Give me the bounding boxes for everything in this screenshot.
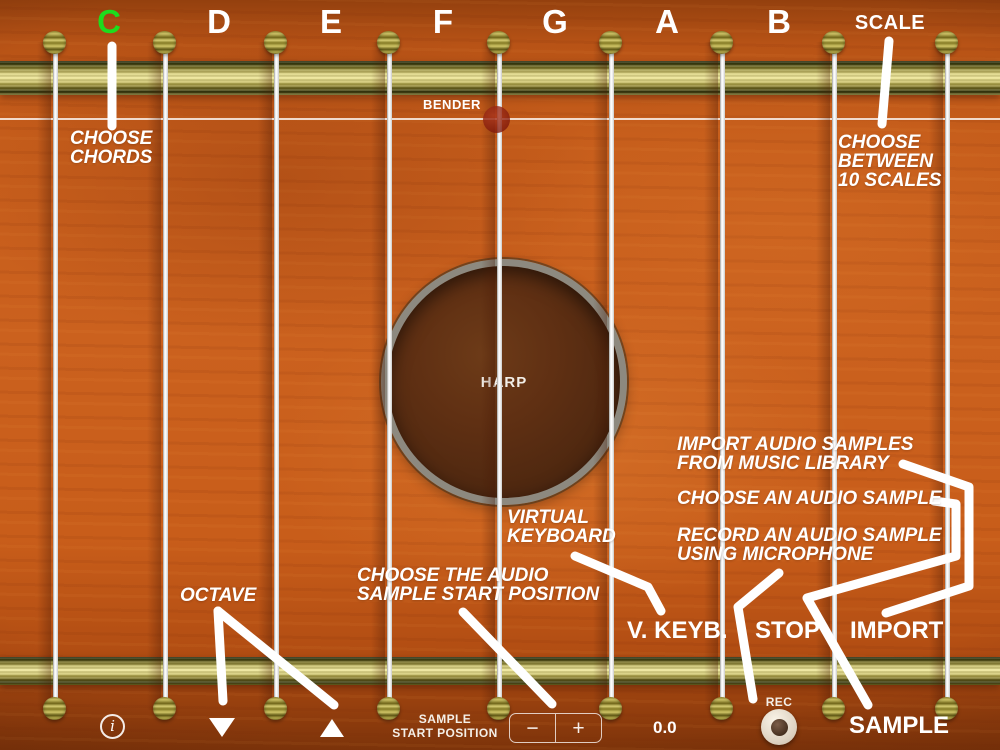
virtual-keyboard-button[interactable]: V. KEYB. — [627, 617, 728, 645]
tuning-peg — [264, 31, 287, 54]
string-7[interactable] — [720, 42, 725, 710]
string-3[interactable] — [274, 42, 279, 710]
chord-button-c[interactable]: C — [97, 3, 121, 41]
bender-handle[interactable] — [483, 106, 510, 133]
record-button[interactable] — [761, 709, 797, 745]
string-2[interactable] — [163, 42, 168, 710]
tuning-peg — [153, 697, 176, 720]
chord-button-g[interactable]: G — [542, 3, 568, 41]
bender-label: BENDER — [423, 97, 481, 112]
sample-start-position-label: SAMPLE START POSITION — [392, 712, 497, 740]
import-button[interactable]: IMPORT — [850, 617, 943, 645]
annotation-import-samples: IMPORT AUDIO SAMPLES FROM MUSIC LIBRARY — [677, 435, 913, 473]
string-1[interactable] — [53, 42, 58, 710]
tuning-peg — [487, 31, 510, 54]
annotation-virtual-keyboard: VIRTUAL KEYBOARD — [507, 508, 616, 546]
tuning-peg — [43, 697, 66, 720]
string-8[interactable] — [832, 42, 837, 710]
string-9[interactable] — [945, 42, 950, 710]
tuning-peg — [710, 697, 733, 720]
sample-button[interactable]: SAMPLE — [849, 712, 949, 740]
chord-button-d[interactable]: D — [207, 3, 231, 41]
string-4[interactable] — [387, 42, 392, 710]
pointer-octave-down — [218, 611, 223, 701]
octave-up-button[interactable] — [320, 719, 344, 737]
info-icon: i — [110, 719, 115, 734]
string-6[interactable] — [609, 42, 614, 710]
rec-label: REC — [766, 695, 793, 709]
annotation-octave: OCTAVE — [180, 586, 256, 605]
annotation-choose-chords: CHOOSE CHORDS — [70, 129, 152, 167]
sample-position-value: 0.0 — [653, 718, 677, 738]
tuning-peg — [43, 31, 66, 54]
chord-button-b[interactable]: B — [767, 3, 791, 41]
tuning-peg — [599, 697, 622, 720]
string-5[interactable] — [497, 42, 502, 710]
sound-hole: HARP — [381, 259, 627, 505]
info-button[interactable]: i — [100, 714, 125, 739]
harp-app-screen: HARP C D E F G A B SCALE BENDER — [0, 0, 1000, 750]
annotation-choose-sample: CHOOSE AN AUDIO SAMPLE — [677, 489, 942, 508]
tuning-peg — [377, 31, 400, 54]
record-button-dot — [771, 719, 788, 736]
chord-button-f[interactable]: F — [433, 3, 453, 41]
tuning-peg — [935, 31, 958, 54]
tuning-peg — [599, 31, 622, 54]
annotation-choose-scales: CHOOSE BETWEEN 10 SCALES — [838, 133, 941, 190]
scale-button[interactable]: SCALE — [855, 12, 925, 35]
chord-button-e[interactable]: E — [320, 3, 342, 41]
chord-button-a[interactable]: A — [655, 3, 679, 41]
annotation-record-sample: RECORD AN AUDIO SAMPLE USING MICROPHONE — [677, 526, 942, 564]
tuning-peg — [710, 31, 733, 54]
tuning-peg — [264, 697, 287, 720]
stepper-minus-button[interactable]: − — [510, 714, 556, 742]
annotation-sample-start: CHOOSE THE AUDIO SAMPLE START POSITION — [357, 566, 599, 604]
tuning-peg — [822, 31, 845, 54]
stepper-plus-button[interactable]: + — [556, 714, 601, 742]
sample-start-stepper: − + — [509, 713, 602, 743]
octave-down-button[interactable] — [209, 718, 235, 737]
tuning-peg — [822, 697, 845, 720]
tuning-peg — [153, 31, 176, 54]
stop-button[interactable]: STOP — [755, 617, 820, 645]
